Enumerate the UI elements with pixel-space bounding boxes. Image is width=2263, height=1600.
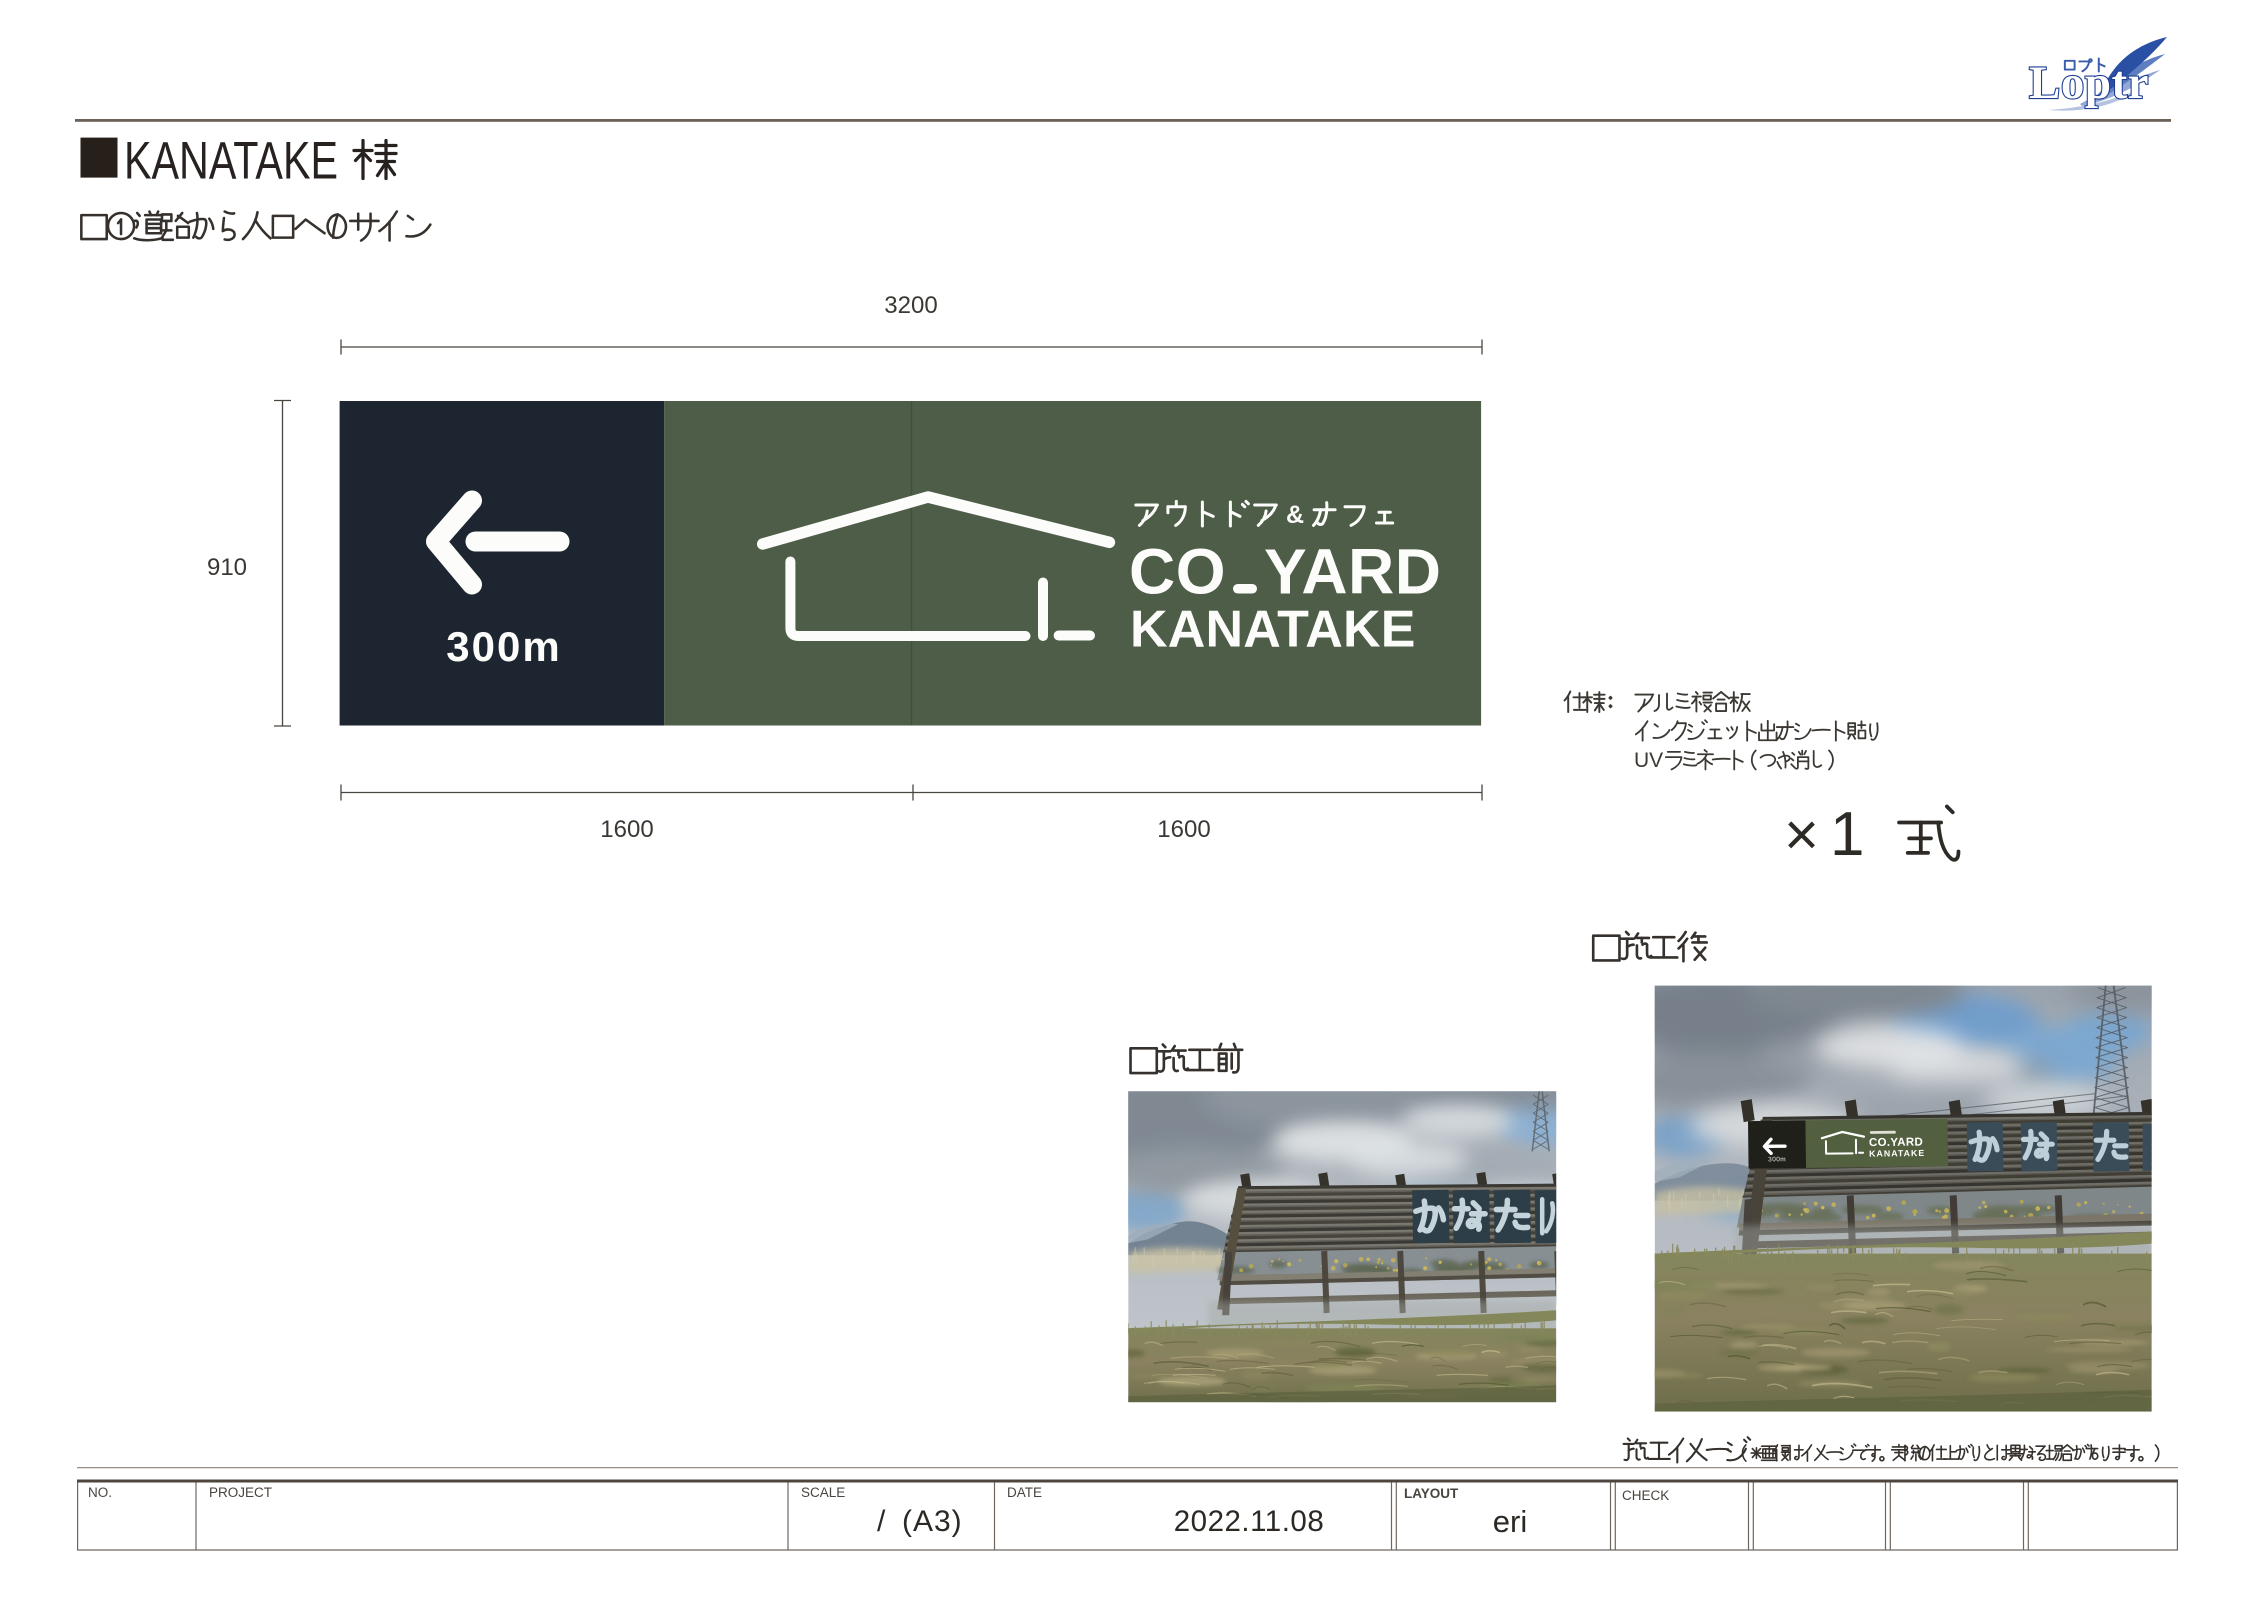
svg-text:NO.: NO. (88, 1485, 112, 1500)
svg-text:×: × (1784, 801, 1819, 868)
svg-text:SCALE: SCALE (801, 1485, 845, 1500)
svg-text:PROJECT: PROJECT (209, 1485, 272, 1500)
svg-text:eri: eri (1493, 1504, 1527, 1539)
svg-text:1600: 1600 (1157, 816, 1210, 843)
svg-text:UV: UV (1634, 749, 1663, 772)
svg-text:1: 1 (1830, 800, 1864, 869)
svg-text:KANATAKE: KANATAKE (1130, 601, 1416, 659)
svg-text:CHECK: CHECK (1622, 1488, 1669, 1503)
svg-text:LAYOUT: LAYOUT (1404, 1486, 1459, 1501)
svg-text:/: / (877, 1505, 886, 1538)
svg-text:KANATAKE: KANATAKE (124, 132, 338, 191)
svg-text:YARD: YARD (1264, 536, 1441, 608)
svg-text:Loptr: Loptr (2029, 57, 2149, 109)
svg-text:1600: 1600 (600, 816, 653, 843)
svg-text:300m: 300m (1768, 1156, 1786, 1163)
svg-text:&: & (1286, 501, 1304, 529)
svg-text:2022.11.08: 2022.11.08 (1174, 1505, 1324, 1538)
svg-text:KANATAKE: KANATAKE (1869, 1148, 1925, 1159)
svg-text:DATE: DATE (1007, 1485, 1042, 1500)
svg-text:300m: 300m (446, 623, 561, 670)
svg-text:910: 910 (207, 554, 247, 581)
svg-text:3200: 3200 (884, 292, 937, 319)
svg-text:CO: CO (1129, 536, 1226, 608)
svg-text:(A3): (A3) (902, 1505, 963, 1538)
